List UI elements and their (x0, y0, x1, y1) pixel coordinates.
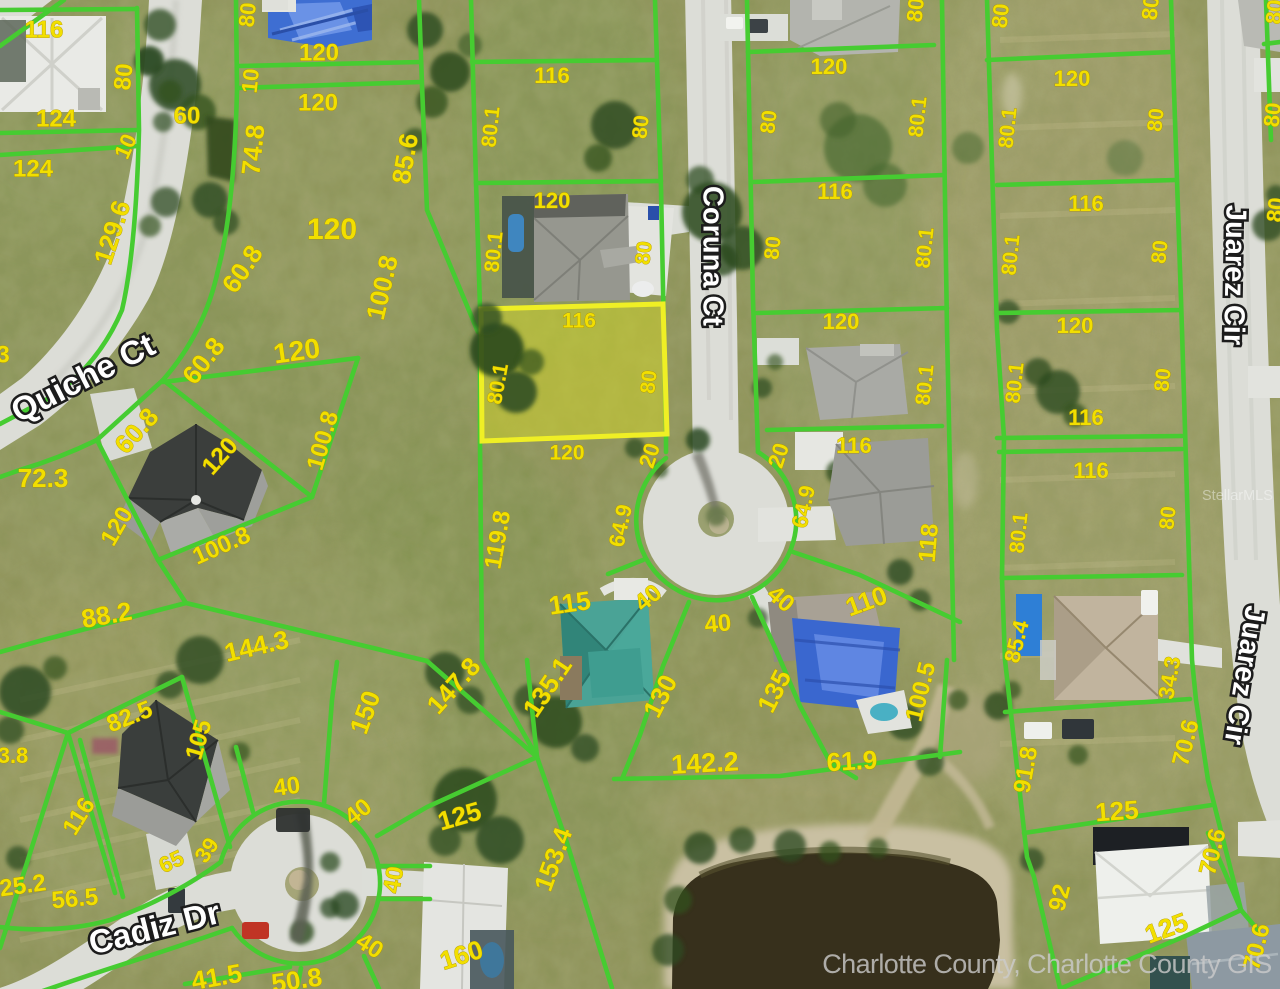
svg-text:80.1: 80.1 (480, 230, 507, 273)
svg-text:3.8: 3.8 (0, 743, 28, 768)
svg-text:80: 80 (109, 62, 139, 91)
svg-text:3: 3 (0, 341, 10, 368)
svg-text:120: 120 (811, 54, 848, 79)
svg-text:80.1: 80.1 (1001, 361, 1028, 404)
svg-text:80: 80 (1150, 367, 1175, 393)
svg-text:116: 116 (562, 310, 596, 333)
svg-text:80: 80 (631, 240, 656, 266)
svg-text:80.1: 80.1 (904, 95, 931, 138)
svg-text:120: 120 (823, 309, 860, 334)
svg-text:72.3: 72.3 (18, 463, 69, 493)
svg-text:80: 80 (760, 235, 785, 261)
svg-text:StellarMLS: StellarMLS (1202, 488, 1273, 504)
svg-text:80: 80 (1262, 196, 1280, 223)
svg-text:120: 120 (299, 39, 339, 66)
svg-text:80: 80 (1137, 0, 1164, 21)
svg-text:80: 80 (987, 2, 1014, 29)
svg-text:74.8: 74.8 (235, 123, 270, 176)
svg-text:80.1: 80.1 (1005, 511, 1032, 554)
svg-text:Juarez Cir: Juarez Cir (1217, 205, 1251, 346)
svg-text:120: 120 (307, 213, 357, 246)
svg-text:80: 80 (636, 369, 661, 395)
svg-text:Charlotte County, Charlotte Co: Charlotte County, Charlotte County GIS (822, 949, 1271, 979)
svg-text:80: 80 (628, 114, 653, 140)
svg-text:80: 80 (1259, 101, 1280, 128)
svg-text:40: 40 (272, 772, 302, 802)
svg-text:80.1: 80.1 (997, 233, 1024, 276)
svg-text:120: 120 (1057, 313, 1094, 338)
svg-text:40: 40 (378, 864, 409, 895)
svg-text:80: 80 (902, 0, 929, 23)
svg-text:120: 120 (298, 89, 338, 116)
svg-text:80: 80 (1155, 505, 1180, 531)
svg-text:60: 60 (174, 102, 201, 129)
svg-text:80: 80 (756, 109, 781, 135)
svg-text:80.1: 80.1 (911, 363, 938, 406)
svg-text:56.5: 56.5 (50, 883, 99, 914)
svg-text:120: 120 (271, 332, 322, 369)
svg-text:61.9: 61.9 (826, 745, 878, 778)
svg-text:116: 116 (817, 179, 853, 204)
svg-text:Coruna Ct: Coruna Ct (696, 186, 728, 327)
svg-text:142.2: 142.2 (670, 746, 739, 779)
svg-text:116: 116 (1068, 405, 1104, 430)
svg-text:115: 115 (547, 585, 593, 621)
svg-text:80.1: 80.1 (477, 105, 504, 148)
svg-text:116: 116 (25, 16, 64, 43)
svg-text:80.1: 80.1 (994, 106, 1021, 149)
svg-text:80: 80 (1147, 239, 1172, 265)
svg-text:116: 116 (1068, 191, 1104, 216)
svg-text:120: 120 (1054, 66, 1091, 91)
svg-text:124: 124 (36, 105, 77, 132)
svg-text:80: 80 (1143, 107, 1168, 133)
svg-text:116: 116 (534, 63, 570, 88)
svg-text:120: 120 (549, 442, 584, 465)
svg-text:80.1: 80.1 (911, 226, 938, 269)
svg-text:116: 116 (1073, 458, 1109, 483)
svg-text:80: 80 (234, 1, 261, 28)
svg-text:40: 40 (703, 609, 732, 638)
svg-text:118: 118 (914, 522, 944, 563)
svg-text:10: 10 (237, 67, 264, 94)
svg-text:124: 124 (13, 155, 54, 182)
svg-text:125: 125 (1094, 794, 1139, 827)
svg-text:120: 120 (534, 188, 571, 213)
svg-text:116: 116 (836, 433, 872, 458)
svg-text:80: 80 (1261, 0, 1280, 25)
